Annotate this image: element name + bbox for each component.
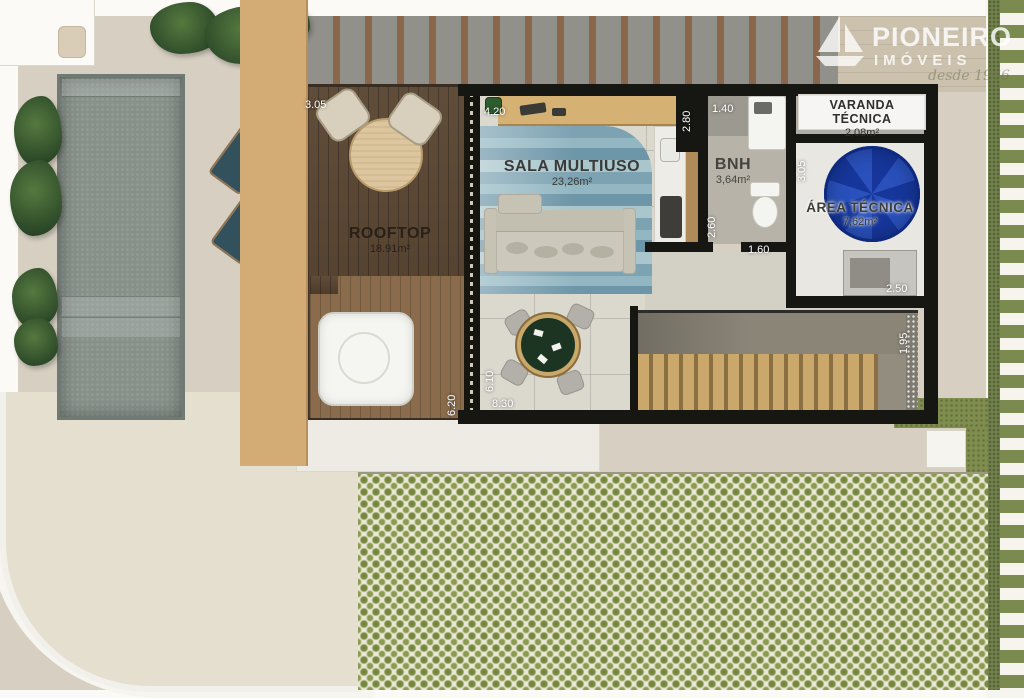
room-area: 2,08m²	[799, 127, 925, 140]
room-area: 3,64m²	[702, 174, 764, 187]
wall-bnh-right	[786, 86, 796, 306]
sofa-pillow-1	[506, 242, 528, 254]
dining-table-top	[521, 318, 575, 372]
room-label-area-tecnica: ÁREA TÉCNICA 7,62m²	[802, 200, 918, 228]
room-name: ROOFTOP	[330, 225, 450, 243]
dim-building-length: 8.30	[492, 398, 513, 410]
dim-rooftop-depth: 6.20	[446, 374, 458, 416]
dim-rooftop-width: 3.05	[305, 99, 326, 111]
brand-tagline: desde 1966	[928, 68, 1010, 84]
room-label-sala: SALA MULTIUSO 23,26m²	[492, 158, 652, 189]
brand-name: PIONEIRO	[872, 22, 1012, 53]
wall-bottom	[458, 410, 938, 424]
room-name: BNH	[702, 156, 764, 174]
swimming-pool	[57, 74, 185, 420]
floor-plan: ROOFTOP 18.91m² SALA MULTIUSO 23,26m² BN…	[0, 0, 1024, 698]
sofa-pillow-2	[534, 246, 558, 258]
dim-area-width: 2.50	[886, 283, 907, 295]
planter-corner	[966, 428, 988, 474]
sofa-pillow-4	[590, 246, 614, 258]
rooftop-frame	[240, 0, 308, 466]
service-hatch	[926, 430, 966, 468]
bnh-entry-floor	[706, 94, 748, 136]
sofa-chaise	[498, 194, 542, 214]
plant-left-1	[14, 96, 62, 166]
dim-stair-depth: 1.95	[898, 314, 910, 354]
pool-step-1	[62, 296, 180, 316]
trellis-bars	[1000, 0, 1024, 690]
walkway	[296, 418, 600, 472]
dim-bnh-depth: 2.60	[706, 198, 718, 238]
sailboat-icon	[810, 12, 870, 72]
dim-area-depth: 3.05	[796, 142, 808, 182]
pool-step-2	[62, 317, 180, 337]
room-name: VARANDA TÉCNICA	[799, 98, 925, 127]
dim-sala-depth: 6.10	[484, 350, 496, 392]
room-label-rooftop: ROOFTOP 18.91m²	[330, 225, 450, 256]
plant-left-4	[14, 318, 58, 366]
platform-notch	[310, 276, 338, 294]
counter-decor-2	[552, 108, 566, 116]
plant-left-2	[10, 160, 62, 236]
dim-sala-width: 4.20	[484, 106, 505, 118]
staircase	[638, 354, 878, 412]
heater-core	[850, 258, 890, 288]
bnh-basin	[754, 102, 772, 114]
sofa-pillow-3	[562, 243, 584, 255]
sofa-arm-right	[622, 208, 636, 274]
toilet-bowl	[752, 196, 778, 228]
room-label-bnh: BNH 3,64m²	[702, 156, 764, 187]
dim-bnh-width: 1.40	[712, 103, 733, 115]
room-name: SALA MULTIUSO	[492, 158, 652, 176]
brand-subtitle: IMÓVEIS	[874, 52, 972, 69]
cooktop	[660, 196, 682, 238]
jacuzzi-ring	[338, 332, 390, 384]
wall-stair-left	[630, 306, 638, 424]
brand-logo: PIONEIRO IMÓVEIS desde 1966	[808, 8, 1024, 86]
sliding-glass-door	[464, 84, 480, 420]
room-area: 7,62m²	[802, 216, 918, 229]
pergola-roof	[308, 16, 838, 92]
dim-hall-width: 1.60	[748, 244, 769, 256]
wall-area-bottom	[786, 296, 938, 308]
room-area: 18.91m²	[330, 243, 450, 256]
utility-box	[58, 26, 86, 58]
dim-kitchen-depth: 2.80	[681, 94, 693, 132]
room-area: 23,26m²	[492, 176, 652, 189]
room-label-varanda: VARANDA TÉCNICA 2,08m²	[798, 94, 926, 130]
green-lattice-roof	[358, 472, 988, 690]
wall-bnh-bottom-left	[645, 242, 713, 252]
stair-landing	[638, 310, 918, 356]
trellis-rail	[988, 0, 1000, 690]
room-name: ÁREA TÉCNICA	[802, 200, 918, 216]
pool-entry-shelf	[62, 79, 180, 97]
